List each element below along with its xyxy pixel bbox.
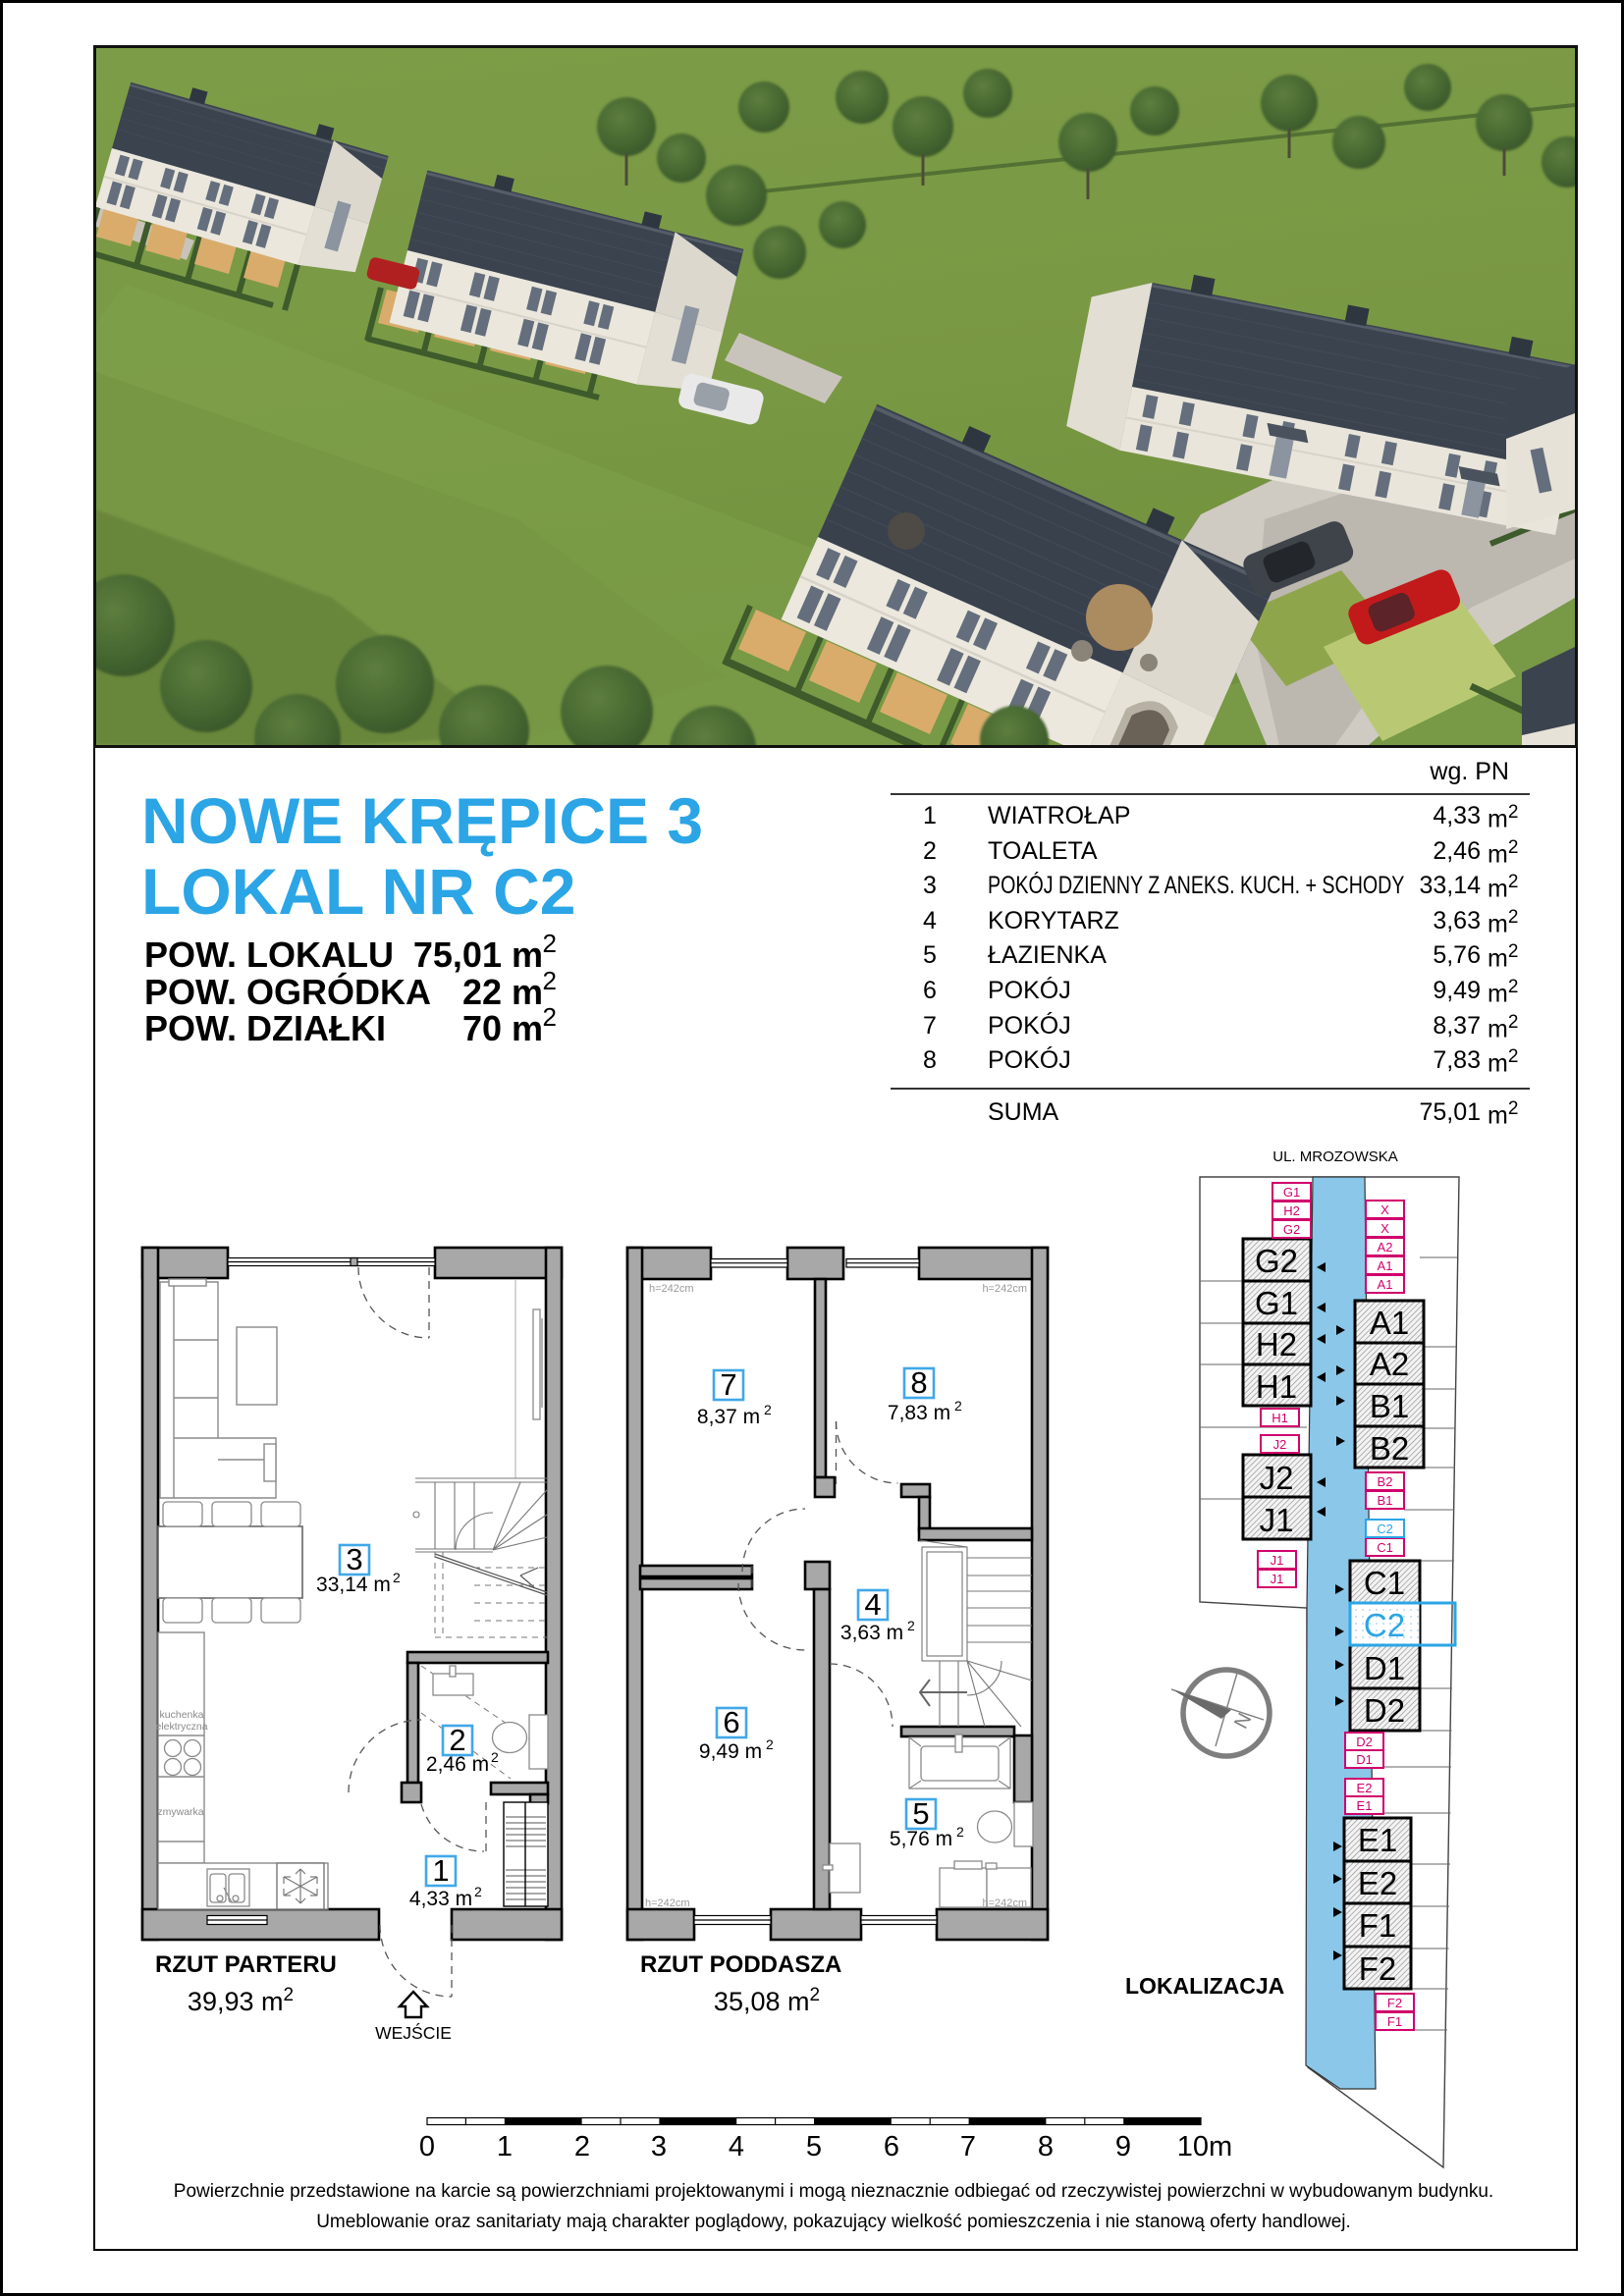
svg-text:A2: A2 [1378, 1240, 1393, 1255]
svg-text:h=242cm: h=242cm [982, 1897, 1027, 1909]
svg-text:E1: E1 [1358, 1822, 1397, 1858]
svg-text:X: X [1380, 1221, 1389, 1236]
svg-text:J2: J2 [1273, 1437, 1287, 1452]
svg-text:H2: H2 [1283, 1203, 1300, 1218]
svg-text:A1: A1 [1378, 1277, 1393, 1292]
svg-text:elektryczna: elektryczna [155, 1721, 207, 1733]
svg-text:3: 3 [346, 1542, 362, 1576]
svg-text:X: X [1380, 1202, 1389, 1217]
svg-text:J1: J1 [1260, 1502, 1294, 1538]
svg-text:G2: G2 [1255, 1243, 1298, 1279]
svg-text:D2: D2 [1364, 1692, 1405, 1729]
svg-text:33,14 m: 33,14 m [316, 1574, 391, 1596]
svg-text:3,63 m: 3,63 m [840, 1622, 903, 1644]
svg-text:5: 5 [912, 1796, 929, 1831]
svg-text:J1: J1 [1271, 1572, 1284, 1586]
svg-text:A1: A1 [1370, 1305, 1409, 1341]
svg-text:F2: F2 [1359, 1950, 1397, 1987]
svg-text:D2: D2 [1356, 1735, 1373, 1749]
svg-text:2: 2 [491, 1749, 499, 1765]
svg-text:h=242cm: h=242cm [982, 1283, 1027, 1295]
svg-text:C1: C1 [1377, 1540, 1393, 1555]
svg-text:F2: F2 [1387, 1996, 1402, 2010]
svg-text:h=242cm: h=242cm [649, 1283, 694, 1295]
svg-text:H2: H2 [1256, 1326, 1297, 1362]
svg-text:H1: H1 [1272, 1411, 1288, 1425]
svg-text:2: 2 [449, 1723, 465, 1757]
svg-text:A1: A1 [1378, 1258, 1393, 1273]
svg-text:G1: G1 [1283, 1185, 1300, 1200]
svg-text:2: 2 [907, 1618, 915, 1633]
svg-text:G2: G2 [1283, 1222, 1300, 1237]
svg-text:4: 4 [864, 1587, 881, 1622]
svg-text:2: 2 [956, 1824, 964, 1840]
svg-text:N: N [1230, 1710, 1256, 1733]
svg-text:2,46 m: 2,46 m [426, 1753, 489, 1776]
svg-text:J1: J1 [1271, 1553, 1284, 1568]
svg-text:2: 2 [766, 1736, 774, 1752]
svg-text:8: 8 [910, 1365, 927, 1400]
svg-text:B2: B2 [1370, 1430, 1409, 1467]
svg-text:E1: E1 [1357, 1798, 1373, 1813]
svg-text:H1: H1 [1256, 1368, 1297, 1405]
svg-text:2: 2 [764, 1402, 772, 1417]
svg-text:9,49 m: 9,49 m [699, 1740, 762, 1763]
svg-text:C2: C2 [1377, 1522, 1393, 1536]
svg-text:D1: D1 [1356, 1752, 1373, 1767]
svg-text:E2: E2 [1357, 1781, 1373, 1795]
svg-text:2: 2 [474, 1884, 482, 1899]
svg-text:6: 6 [723, 1705, 739, 1739]
svg-text:h=242cm: h=242cm [645, 1897, 690, 1909]
svg-text:2: 2 [954, 1398, 962, 1414]
svg-text:zmywarka: zmywarka [157, 1806, 203, 1818]
svg-text:G1: G1 [1255, 1285, 1298, 1321]
svg-text:F1: F1 [1387, 2014, 1402, 2029]
svg-text:kuchenka: kuchenka [160, 1709, 204, 1721]
svg-text:B1: B1 [1378, 1493, 1393, 1508]
svg-text:7: 7 [720, 1367, 736, 1402]
svg-text:7,83 m: 7,83 m [888, 1402, 950, 1424]
svg-text:8,37 m: 8,37 m [697, 1406, 760, 1428]
svg-text:B1: B1 [1370, 1388, 1409, 1424]
svg-text:D1: D1 [1364, 1650, 1405, 1686]
svg-text:C1: C1 [1364, 1565, 1405, 1601]
svg-text:E2: E2 [1358, 1865, 1397, 1901]
svg-text:1: 1 [432, 1853, 449, 1888]
svg-text:5,76 m: 5,76 m [890, 1828, 952, 1850]
svg-text:C2: C2 [1364, 1607, 1405, 1643]
svg-text:4,33 m: 4,33 m [409, 1888, 472, 1910]
svg-text:B2: B2 [1378, 1474, 1393, 1489]
svg-text:J2: J2 [1260, 1460, 1294, 1496]
svg-text:2: 2 [393, 1570, 401, 1585]
svg-text:F1: F1 [1359, 1907, 1397, 1944]
svg-text:A2: A2 [1370, 1346, 1409, 1382]
